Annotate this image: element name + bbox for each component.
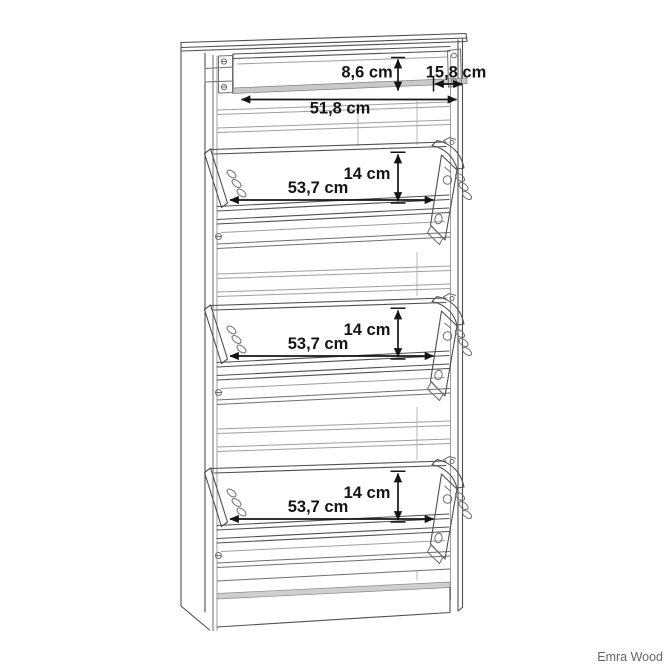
dim-label-flap1-height: 14 cm [344, 165, 391, 183]
dim-label-top-depth: 15,8 cm [426, 64, 487, 82]
diagram-page: 8,6 cm 15,8 cm 51,8 cm 14 cm 53,7 cm 14 … [0, 0, 667, 667]
dim-label-flap2-height: 14 cm [344, 321, 391, 339]
watermark-text: Emra Wood [597, 650, 663, 664]
dim-label-flap1-width: 53,7 cm [288, 179, 349, 197]
dim-label-top-height: 8,6 cm [341, 64, 392, 82]
dim-label-flap3-height: 14 cm [344, 484, 391, 502]
dimension-diagram: 8,6 cm 15,8 cm 51,8 cm 14 cm 53,7 cm 14 … [0, 0, 667, 667]
dim-label-flap3-width: 53,7 cm [288, 498, 349, 516]
dim-label-flap2-width: 53,7 cm [288, 335, 349, 353]
dim-label-top-width: 51,8 cm [310, 100, 371, 118]
